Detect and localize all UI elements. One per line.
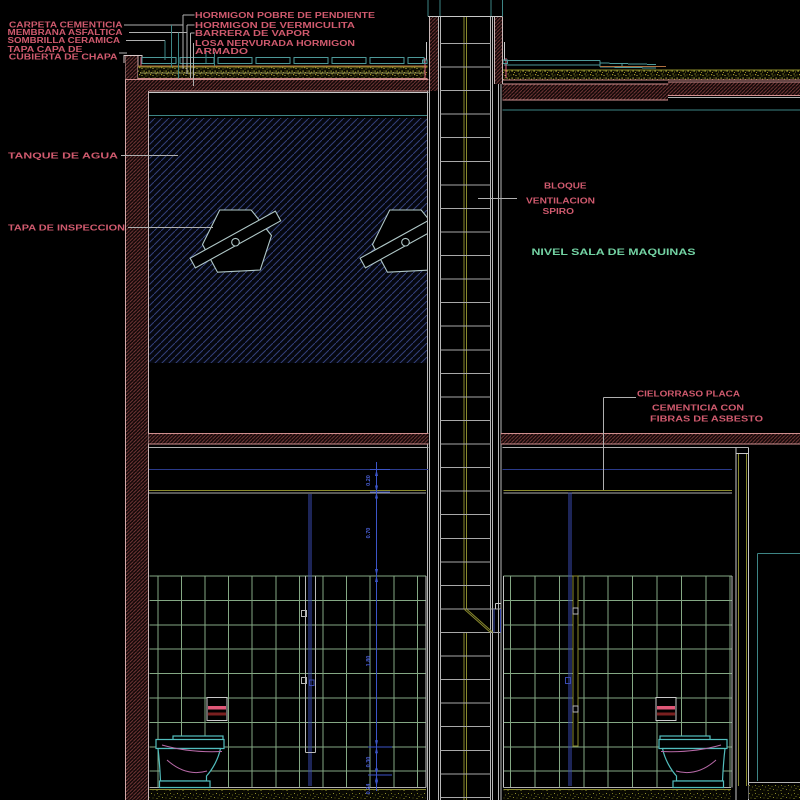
svg-text:CIELORRASO PLACA: CIELORRASO PLACA <box>637 390 740 399</box>
svg-text:SOMBRILLA CERAMICA: SOMBRILLA CERAMICA <box>8 36 121 45</box>
svg-text:NIVEL SALA DE MAQUINAS: NIVEL SALA DE MAQUINAS <box>532 247 696 257</box>
svg-text:BLOQUE: BLOQUE <box>544 182 587 191</box>
svg-text:FIBRAS DE ASBESTO: FIBRAS DE ASBESTO <box>650 415 763 424</box>
svg-text:VENTILACION: VENTILACION <box>526 197 595 206</box>
svg-text:0.24: 0.24 <box>366 783 372 795</box>
svg-text:TAPA DE INSPECCION: TAPA DE INSPECCION <box>8 223 125 233</box>
svg-text:0.70: 0.70 <box>366 528 372 539</box>
svg-text:HORMIGON POBRE DE PENDIENTE: HORMIGON POBRE DE PENDIENTE <box>195 11 376 20</box>
svg-text:0.30: 0.30 <box>366 757 372 768</box>
svg-text:1.80: 1.80 <box>366 656 372 667</box>
svg-text:BARRERA DE VAPOR: BARRERA DE VAPOR <box>195 29 310 38</box>
svg-text:CUBIERTA DE CHAPA: CUBIERTA DE CHAPA <box>9 53 118 62</box>
svg-text:SPIRO: SPIRO <box>543 207 575 216</box>
svg-text:0.20: 0.20 <box>366 475 372 486</box>
svg-text:TANQUE DE AGUA: TANQUE DE AGUA <box>8 151 118 161</box>
svg-text:CEMENTICIA CON: CEMENTICIA CON <box>652 404 744 413</box>
svg-text:ARMADO: ARMADO <box>195 47 248 56</box>
